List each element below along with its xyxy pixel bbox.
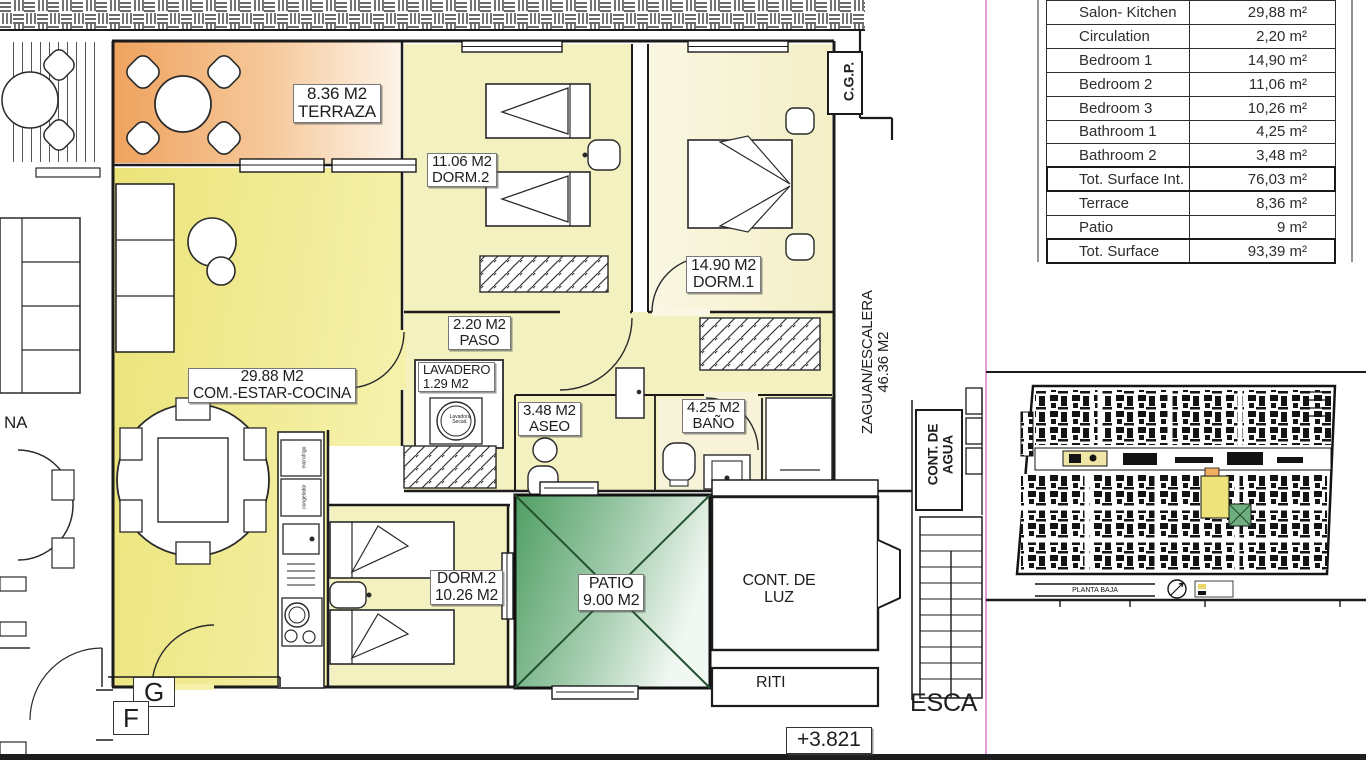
room-label: Terrace	[1047, 192, 1190, 215]
aseo-area: 3.48 M2	[523, 402, 576, 419]
label-na: NA	[0, 414, 31, 432]
room-label: Bedroom 3	[1047, 97, 1190, 120]
table-row: Circulation2,20 m²	[1047, 24, 1335, 48]
room-label: Circulation	[1047, 25, 1190, 48]
pavement-hatch	[0, 0, 865, 30]
na-text: NA	[4, 413, 27, 432]
mini-caption-text: PLANTA BAJA	[1072, 587, 1118, 594]
label-dorm3: DORM.2 10.26 M2	[430, 570, 503, 605]
bano-area: 4.25 M2	[687, 399, 740, 416]
table-row: Bedroom 211,06 m²	[1047, 72, 1335, 96]
kitchen-appl1-text: microfrigo	[302, 447, 308, 469]
unit-f-text: F	[123, 703, 139, 733]
dorm2-top-name: DORM.2	[432, 169, 489, 186]
label-cont-agua: CONT. DE AGUA	[926, 396, 955, 514]
cont-agua-line2: AGUA	[940, 435, 955, 474]
lavadero-name: LAVADERO	[423, 362, 490, 377]
room-area: 8,36 m²	[1190, 192, 1335, 215]
label-dorm2-top: 11.06 M2 DORM.2	[427, 153, 497, 187]
surface-table: Salon- Kitchen29,88 m² Circulation2,20 m…	[1046, 0, 1336, 264]
room-label: Salon- Kitchen	[1047, 1, 1190, 24]
level-value: +3.821	[797, 728, 861, 751]
riti-name: RITI	[756, 674, 785, 691]
room-area: 14,90 m²	[1190, 49, 1335, 72]
table-row-total-interior: Tot. Surface Int.76,03 m²	[1047, 167, 1335, 191]
dorm1-area: 14.90 M2	[691, 257, 756, 274]
kitchen-strip	[278, 432, 324, 688]
patio-name: PATIO	[589, 575, 634, 592]
living-area: 29.88 M2	[241, 368, 304, 385]
label-kitchen-appl2: congelador	[303, 473, 308, 521]
room-area: 11,06 m²	[1190, 73, 1335, 96]
label-dorm1: 14.90 M2 DORM.1	[686, 256, 761, 293]
label-cont-luz: CONT. DE LUZ	[722, 572, 836, 607]
label-washer: Lavadora Secad.	[436, 415, 484, 425]
room-area: 93,39 m²	[1190, 240, 1335, 263]
room-area: 10,26 m²	[1190, 97, 1335, 120]
table-row: Salon- Kitchen29,88 m²	[1047, 0, 1335, 24]
table-row: Bedroom 310,26 m²	[1047, 96, 1335, 120]
neighbour-unit	[0, 42, 102, 755]
bano-name: BAÑO	[693, 415, 735, 432]
label-level: +3.821	[786, 727, 872, 754]
paso-area: 2.20 M2	[453, 316, 506, 333]
room-area: 2,20 m²	[1190, 25, 1335, 48]
label-patio: PATIO 9.00 M2	[578, 574, 644, 611]
room-label: Tot. Surface	[1047, 240, 1190, 263]
label-zaguan: ZAGUAN/ESCALERA 46.36 M2	[860, 263, 892, 461]
mini-plan-caption: PLANTA BAJA	[1035, 580, 1233, 598]
label-bano: 4.25 M2 BAÑO	[682, 399, 745, 433]
room-label: Bathroom 2	[1047, 144, 1190, 167]
floorplan-sheet: PLANTA BAJA 8.36 M2 TERRAZA 11.06 M2 DOR…	[0, 0, 1366, 768]
room-area: 9 m²	[1190, 216, 1335, 239]
room-label: Bedroom 2	[1047, 73, 1190, 96]
room-label: Bedroom 1	[1047, 49, 1190, 72]
terraza-area: 8.36 M2	[307, 84, 367, 103]
room-label: Bathroom 1	[1047, 121, 1190, 144]
label-paso: 2.20 M2 PASO	[448, 316, 511, 350]
dorm2-top-area: 11.06 M2	[432, 153, 492, 170]
washer-line2: Secad.	[452, 419, 468, 425]
label-living: 29.88 M2 COM.-ESTAR-COCINA	[188, 368, 356, 403]
table-row: Bathroom 23,48 m²	[1047, 143, 1335, 167]
cont-agua-line1: CONT. DE	[925, 424, 940, 485]
zaguan-area: 46.36 M2	[875, 332, 892, 393]
table-row: Bedroom 114,90 m²	[1047, 48, 1335, 72]
living-name: COM.-ESTAR-COCINA	[193, 385, 351, 402]
label-lavadero: LAVADERO 1.29 M2	[418, 362, 495, 392]
label-esca: ESCA	[906, 690, 981, 717]
cont-luz-line2: LUZ	[764, 589, 794, 606]
lavadero-area: 1.29 M2	[423, 376, 469, 391]
label-unit-f: F	[113, 701, 149, 735]
label-cgp: C.G.P.	[841, 43, 856, 121]
patio-area: 9.00 M2	[583, 592, 639, 609]
paso-name: PASO	[460, 332, 500, 349]
cont-luz-line1: CONT. DE	[742, 572, 815, 589]
esca-text: ESCA	[910, 689, 977, 717]
cgp-name: C.G.P.	[840, 62, 856, 101]
table-row: Terrace8,36 m²	[1047, 191, 1335, 215]
aseo-name: ASEO	[529, 418, 570, 435]
terraza-name: TERRAZA	[298, 102, 376, 121]
dorm3-area: 10.26 M2	[435, 587, 498, 604]
mini-site-plan: PLANTA BAJA	[1017, 386, 1335, 598]
kitchen-appl2-text: congelador	[302, 484, 308, 509]
zaguan-name: ZAGUAN/ESCALERA	[859, 290, 876, 434]
room-label: Tot. Surface Int.	[1047, 168, 1190, 191]
room-area: 3,48 m²	[1190, 144, 1335, 167]
room-area: 76,03 m²	[1190, 168, 1335, 191]
label-terraza: 8.36 M2 TERRAZA	[293, 84, 381, 123]
room-area: 4,25 m²	[1190, 121, 1335, 144]
room-area: 29,88 m²	[1190, 1, 1335, 24]
label-riti: RITI	[752, 674, 789, 691]
label-aseo: 3.48 M2 ASEO	[518, 402, 581, 436]
dorm1-name: DORM.1	[693, 274, 754, 291]
dorm3-name: DORM.2	[437, 570, 496, 587]
table-row-total: Tot. Surface93,39 m²	[1047, 239, 1335, 263]
table-row: Bathroom 14,25 m²	[1047, 120, 1335, 144]
room-label: Patio	[1047, 216, 1190, 239]
table-row: Patio9 m²	[1047, 215, 1335, 239]
